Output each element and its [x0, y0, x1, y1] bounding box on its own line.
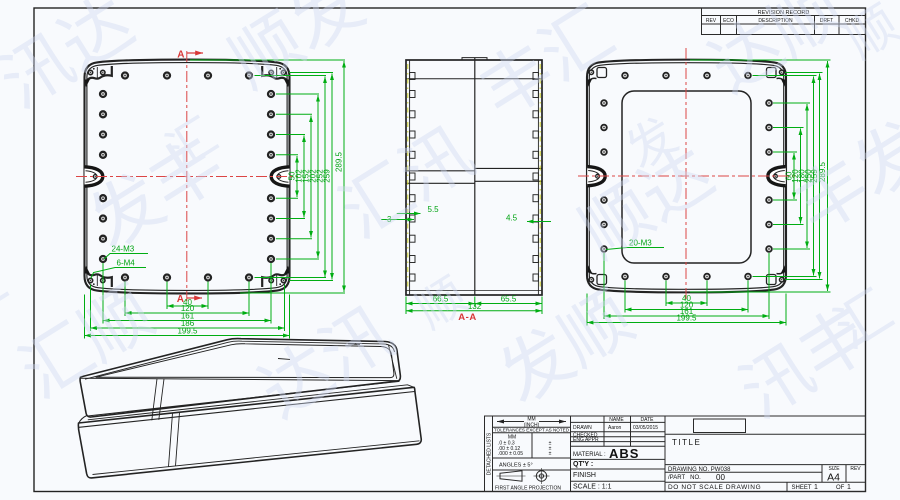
svg-text:SCALE : 1:1: SCALE : 1:1	[573, 484, 612, 491]
svg-text:MATERIAL :: MATERIAL :	[573, 452, 606, 458]
svg-text:A4: A4	[827, 472, 840, 484]
svg-text:REV: REV	[850, 466, 861, 472]
svg-text:ANGLES ± 5°: ANGLES ± 5°	[499, 462, 533, 468]
svg-text:/PART NO.: /PART NO.	[668, 475, 701, 481]
svg-text:00: 00	[716, 473, 725, 482]
svg-text:NAME: NAME	[609, 417, 624, 423]
svg-text:FINISH: FINISH	[573, 472, 596, 479]
svg-text:DETACHED LISTS: DETACHED LISTS	[487, 432, 493, 475]
svg-text:1: 1	[847, 484, 851, 491]
svg-text:±: ±	[549, 451, 552, 457]
svg-text:03/05/2015: 03/05/2015	[633, 425, 658, 431]
svg-text:Aaron: Aaron	[608, 425, 622, 431]
svg-text:289.5: 289.5	[335, 151, 344, 172]
svg-text:DRAWN: DRAWN	[573, 425, 592, 431]
svg-text:199.5: 199.5	[676, 314, 697, 323]
svg-text:4.5: 4.5	[506, 214, 518, 223]
svg-text:REV: REV	[706, 18, 717, 24]
svg-text:OF: OF	[836, 485, 845, 491]
svg-text:1: 1	[814, 484, 818, 491]
svg-text:SHEET: SHEET	[792, 485, 812, 491]
svg-text:QT'Y :: QT'Y :	[573, 461, 593, 468]
svg-text:199.5: 199.5	[177, 327, 198, 336]
svg-text:.000 ± 0.05: .000 ± 0.05	[498, 451, 523, 457]
svg-text:TITLE: TITLE	[672, 438, 701, 447]
svg-text:65.5: 65.5	[501, 295, 517, 304]
svg-text:TOLERANCES EXCEPT AS NOTED: TOLERANCES EXCEPT AS NOTED	[494, 428, 570, 433]
svg-text:259: 259	[323, 169, 332, 183]
svg-text:FIRST ANGLE PROJECTION: FIRST ANGLE PROJECTION	[495, 485, 561, 491]
svg-text:DO NOT SCALE DRAWING: DO NOT SCALE DRAWING	[668, 484, 761, 491]
svg-text:A: A	[177, 50, 184, 61]
svg-text:DATE: DATE	[641, 417, 655, 423]
svg-text:ENG APPR: ENG APPR	[573, 437, 599, 443]
svg-text:ABS: ABS	[609, 446, 639, 461]
